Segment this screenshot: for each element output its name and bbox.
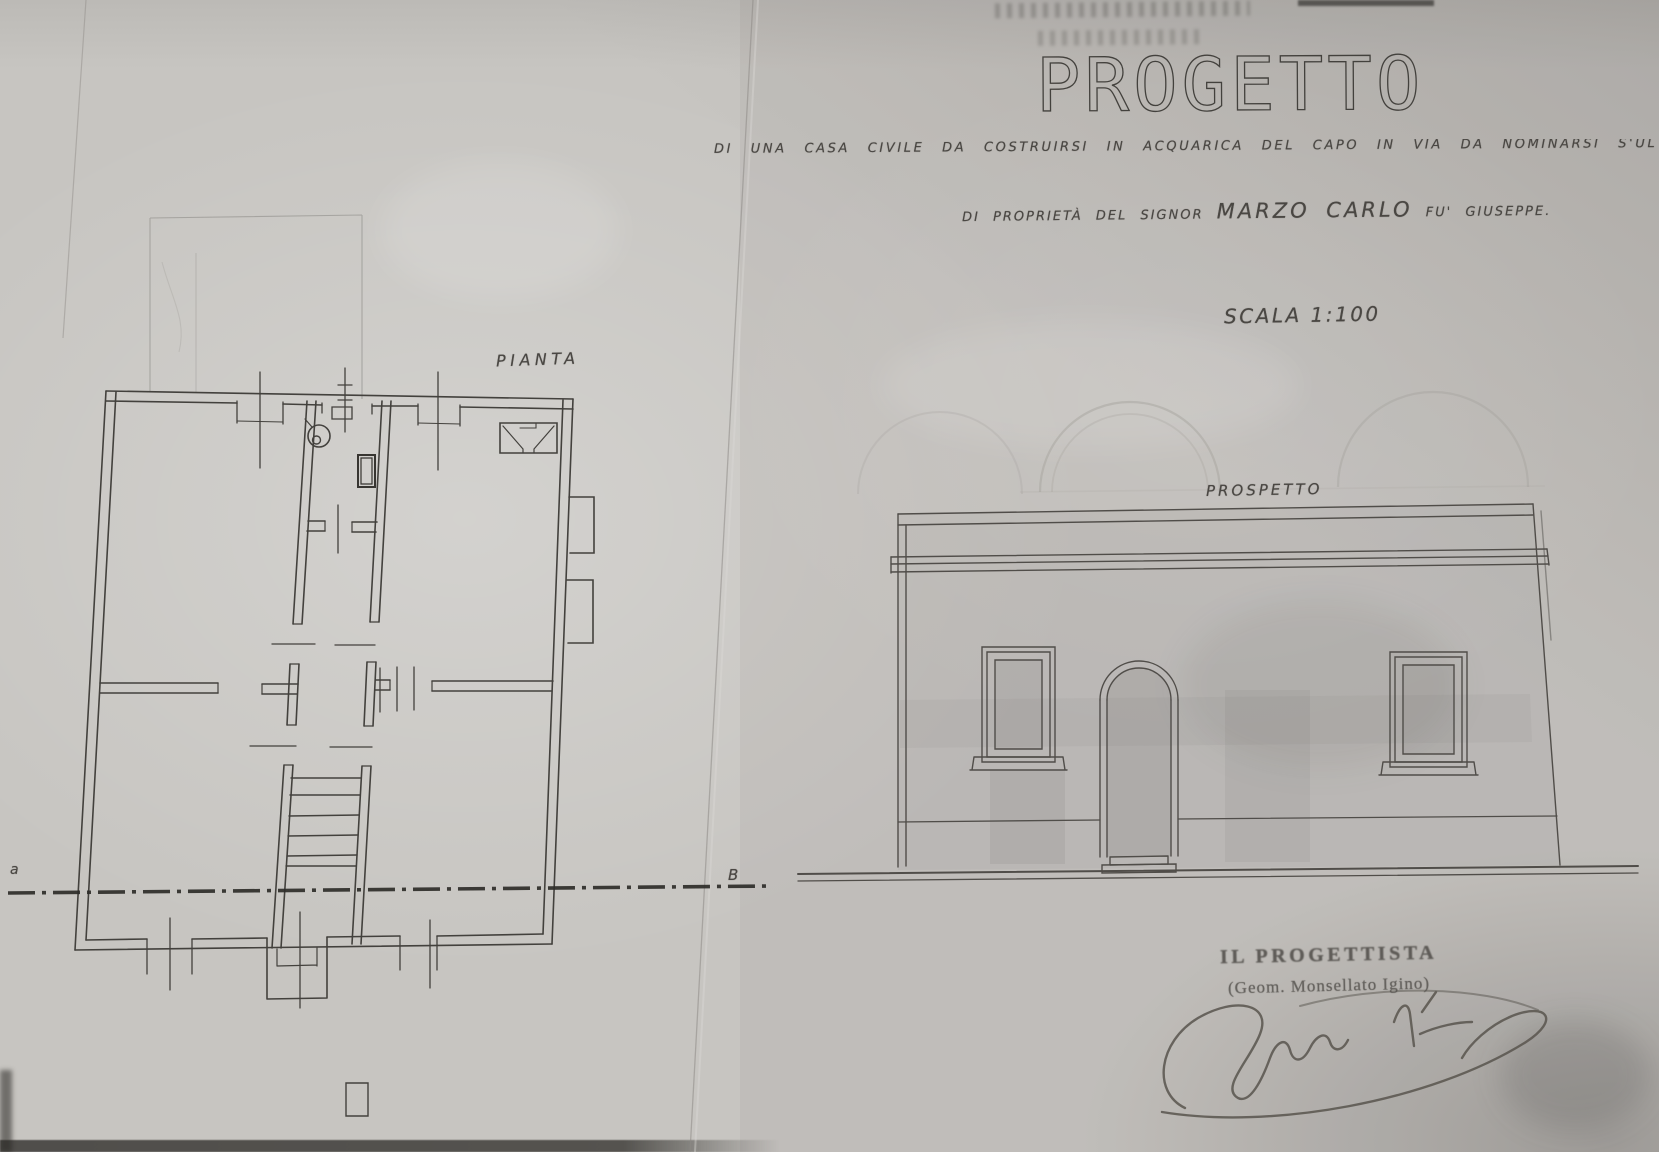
well-symbol <box>305 419 330 447</box>
detail-mark <box>346 1083 368 1116</box>
scan-edge-corner <box>0 1070 12 1152</box>
paper-stain <box>1180 600 1460 770</box>
scale-label: SCALA 1:100 <box>1224 302 1381 329</box>
page-title: PROGETTO <box>1036 41 1425 129</box>
chimney-symbol <box>500 423 557 453</box>
ownership-prefix: DI PROPRIETÀ DEL SIGNOR <box>962 208 1204 226</box>
elevation-label: PROSPETTO <box>1206 480 1323 500</box>
paper-creases <box>63 0 758 1152</box>
subtitle-line: DI UNA CASA CIVILE DA COSTRUIRSI IN ACQU… <box>714 139 1659 157</box>
designer-heading: IL PROGETTISTA <box>1220 942 1437 970</box>
plan-label: PIANTA <box>496 349 580 371</box>
scan-edge-bottom <box>0 1140 780 1152</box>
niche-symbol <box>358 455 375 487</box>
owner-name: MARZO CARLO <box>1217 197 1413 223</box>
subtitle-clip: DI UNA CASA CIVILE DA COSTRUIRSI IN ACQU… <box>714 139 1659 169</box>
ghost-bleed-text-line1 <box>995 1 1250 19</box>
pencil-sketch <box>150 215 362 399</box>
paper-mottle <box>380 160 620 300</box>
paper-stain <box>1500 1020 1650 1130</box>
staircase <box>286 778 361 866</box>
top-edge-mark <box>1298 0 1434 6</box>
section-marker-b: B <box>728 866 738 884</box>
axis-ticks <box>170 368 438 1008</box>
fold-tone <box>740 0 1659 1152</box>
floor-plan-drawing <box>75 368 594 1116</box>
paper-mottle <box>880 320 1300 450</box>
ownership-suffix: FU' GIUSEPPE. <box>1426 204 1552 220</box>
section-marker-a: a <box>10 862 19 878</box>
scanned-drawing-sheet: PROGETTO DI UNA CASA CIVILE DA COSTRUIRS… <box>0 0 1659 1152</box>
section-line-ab <box>8 886 770 893</box>
